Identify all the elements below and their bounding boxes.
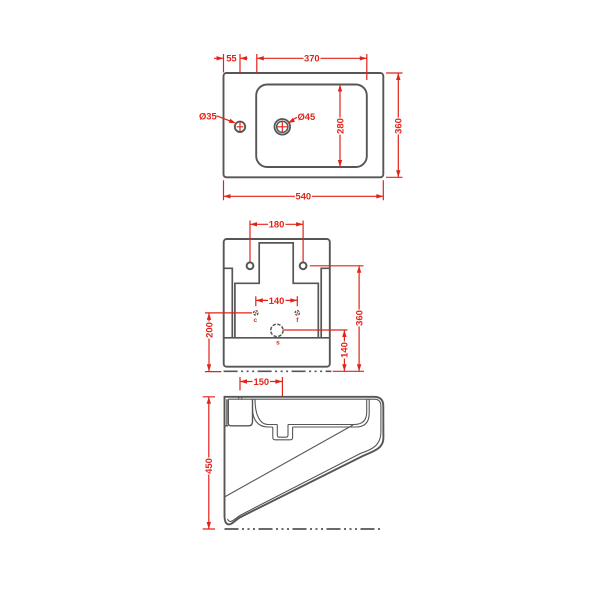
svg-text:280: 280: [334, 118, 345, 134]
svg-text:540: 540: [296, 191, 312, 202]
svg-text:Ø45: Ø45: [298, 111, 316, 122]
svg-text:360: 360: [393, 118, 404, 134]
svg-text:370: 370: [304, 53, 320, 64]
svg-text:s: s: [276, 339, 280, 346]
svg-text:c: c: [254, 317, 258, 324]
svg-text:140: 140: [269, 295, 285, 306]
svg-text:140: 140: [339, 342, 350, 358]
svg-text:f: f: [296, 317, 299, 324]
svg-text:150: 150: [254, 376, 270, 387]
svg-text:180: 180: [269, 219, 285, 230]
svg-text:200: 200: [203, 322, 214, 338]
svg-text:360: 360: [353, 310, 364, 326]
svg-text:450: 450: [203, 458, 214, 474]
svg-text:Ø35: Ø35: [199, 111, 217, 122]
svg-text:55: 55: [226, 53, 236, 64]
